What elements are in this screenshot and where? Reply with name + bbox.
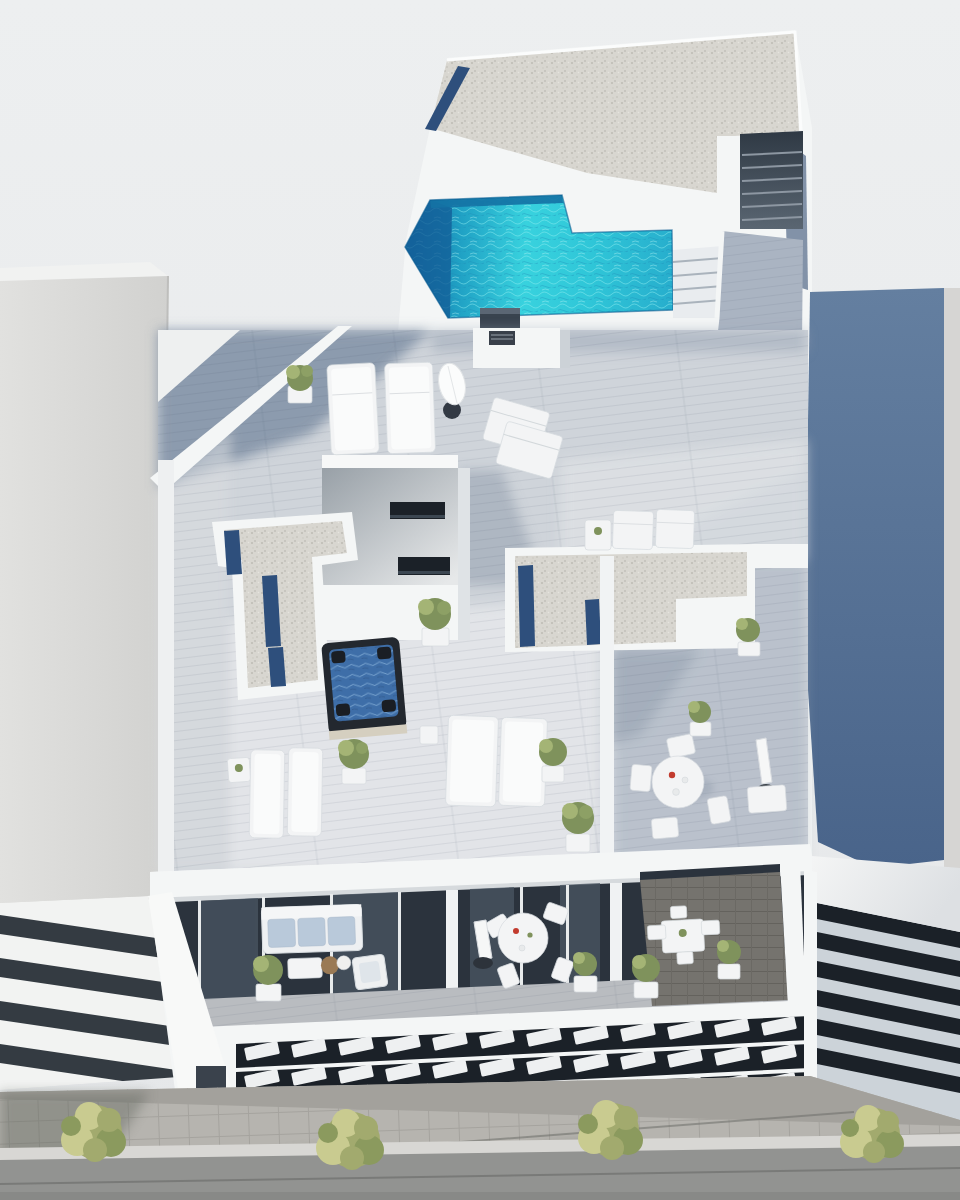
terrace-parapet	[752, 544, 808, 568]
sun-lounger	[249, 750, 285, 839]
dining-chair	[651, 817, 679, 839]
round-table	[498, 913, 548, 963]
divider-wall	[600, 556, 614, 874]
skylight-strip	[518, 565, 535, 647]
stair-parapet	[717, 136, 740, 231]
skylight-strip	[585, 599, 601, 645]
sun-lounger	[498, 717, 547, 807]
side-table	[420, 726, 438, 744]
gravel-roof-section	[505, 544, 755, 652]
potted-plant	[418, 598, 451, 646]
architectural-render	[0, 0, 960, 1200]
sun-lounger	[327, 363, 380, 455]
potted-plant	[253, 955, 283, 1001]
sun-lounger	[384, 362, 435, 454]
armchair	[352, 954, 388, 990]
left-building-face	[0, 276, 168, 930]
sun-lounger	[287, 748, 323, 837]
potted-plant	[688, 701, 711, 736]
neighbor-edge	[804, 870, 817, 1080]
potted-plant	[539, 738, 567, 782]
neighbor-terrace	[632, 862, 806, 1006]
render-scene	[0, 0, 960, 1200]
blue-side-wall	[808, 288, 944, 868]
left-parapet	[158, 460, 174, 872]
side-table	[227, 757, 251, 782]
side-table	[747, 785, 787, 814]
potted-plant	[717, 940, 741, 979]
balcony-sofa	[261, 904, 363, 953]
potted-plant	[562, 802, 594, 852]
stair-opening	[717, 131, 803, 231]
potted-plant	[573, 952, 597, 992]
side-table	[585, 520, 611, 550]
sun-lounger	[445, 715, 498, 807]
sun-lounger	[612, 510, 653, 549]
sun-lounger	[655, 509, 694, 548]
potted-plant	[338, 739, 369, 784]
dining-chair	[630, 764, 652, 792]
dining-table	[652, 756, 704, 808]
potted-plant	[286, 365, 313, 403]
jacuzzi	[321, 637, 407, 740]
dining-chair	[707, 795, 731, 824]
skylight-strip	[268, 647, 286, 687]
ac-unit-box	[473, 328, 570, 368]
right-neighbor-wall	[944, 288, 960, 868]
potted-plant	[632, 954, 660, 998]
skylight-strip	[224, 530, 242, 575]
potted-plant	[736, 618, 760, 656]
